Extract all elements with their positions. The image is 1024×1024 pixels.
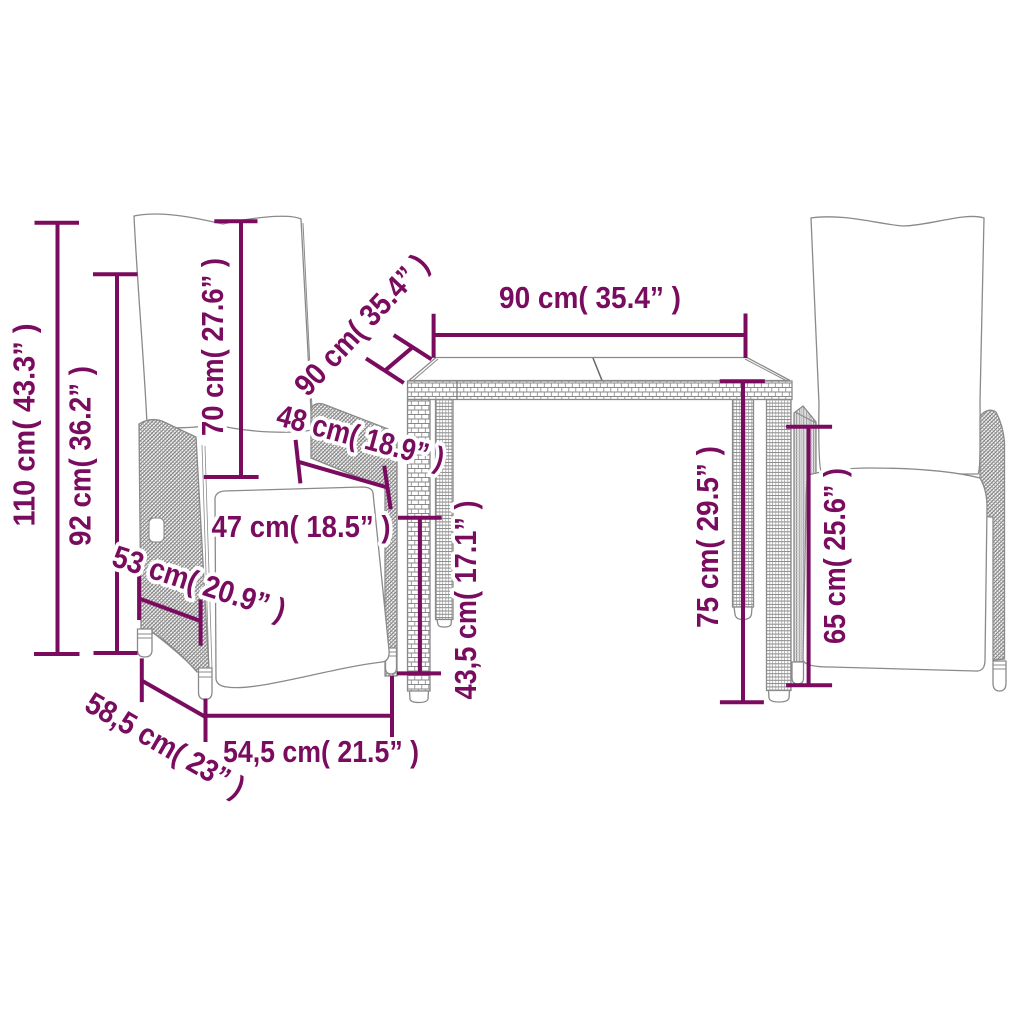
svg-text:92 cm( 36.2” ): 92 cm( 36.2” ) bbox=[63, 366, 98, 546]
svg-text:90 cm( 35.4” ): 90 cm( 35.4” ) bbox=[499, 280, 681, 315]
svg-text:75 cm( 29.5” ): 75 cm( 29.5” ) bbox=[690, 446, 725, 628]
svg-text:43,5 cm( 17.1” ): 43,5 cm( 17.1” ) bbox=[448, 501, 483, 700]
svg-text:47 cm( 18.5” ): 47 cm( 18.5” ) bbox=[212, 509, 391, 544]
svg-text:110 cm( 43.3” ): 110 cm( 43.3” ) bbox=[7, 324, 42, 527]
svg-text:70 cm( 27.6” ): 70 cm( 27.6” ) bbox=[195, 258, 230, 436]
svg-text:65 cm( 25.6” ): 65 cm( 25.6” ) bbox=[817, 468, 852, 644]
svg-text:54,5 cm( 21.5” ): 54,5 cm( 21.5” ) bbox=[223, 734, 419, 769]
